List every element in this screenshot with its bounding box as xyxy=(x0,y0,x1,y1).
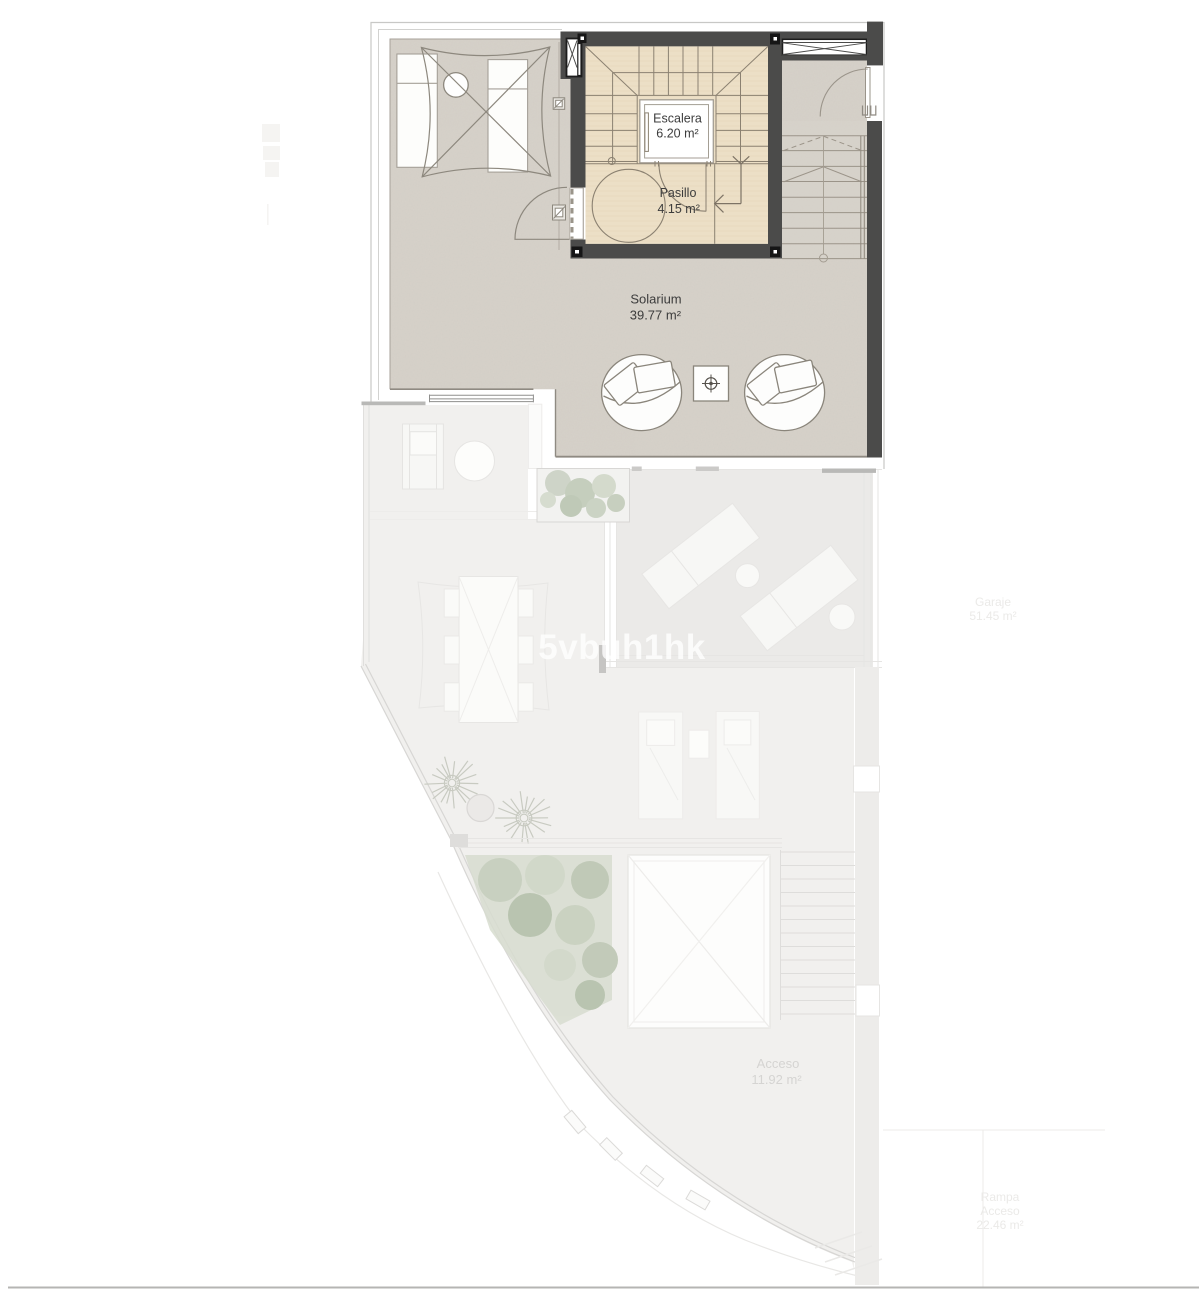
svg-text:Solarium: Solarium xyxy=(630,292,681,307)
svg-text:Garaje: Garaje xyxy=(975,595,1011,609)
svg-text:Escalera: Escalera xyxy=(653,112,702,126)
svg-text:4.15 m²: 4.15 m² xyxy=(658,202,700,216)
svg-text:Rampa: Rampa xyxy=(981,1190,1020,1204)
svg-text:Pasillo: Pasillo xyxy=(660,186,697,200)
svg-text:Acceso: Acceso xyxy=(980,1204,1020,1218)
svg-text:Acceso: Acceso xyxy=(757,1056,800,1071)
svg-text:39.77 m²: 39.77 m² xyxy=(630,308,682,323)
svg-text:5vbuh1hk: 5vbuh1hk xyxy=(538,628,705,667)
svg-text:11.92 m²: 11.92 m² xyxy=(751,1072,802,1087)
svg-text:6.20 m²: 6.20 m² xyxy=(656,127,698,141)
svg-text:51.45 m²: 51.45 m² xyxy=(969,609,1016,623)
